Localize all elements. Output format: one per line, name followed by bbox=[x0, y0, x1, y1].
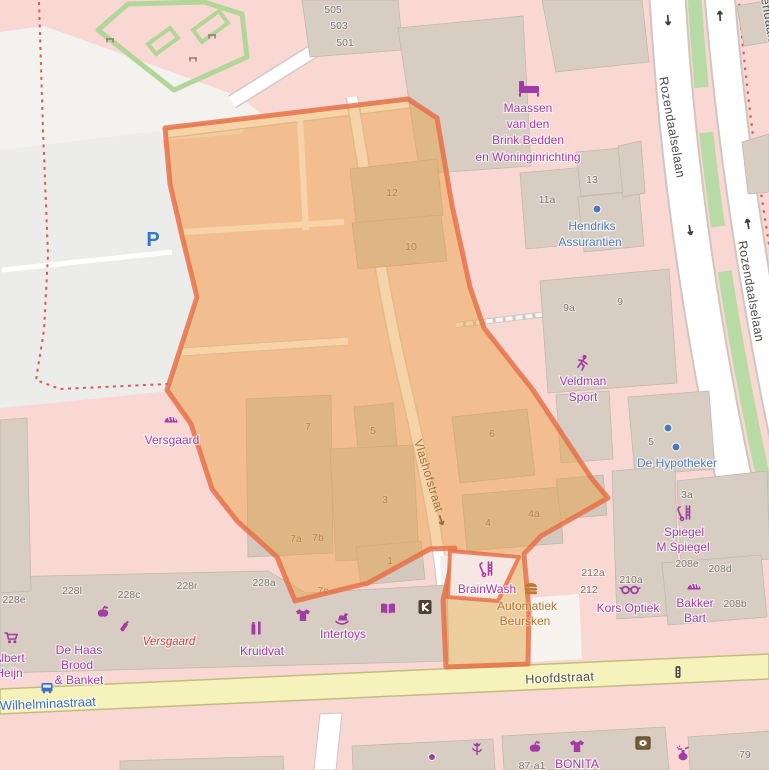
poi-label: Kors Optiek bbox=[597, 601, 661, 615]
poi-label: Versgaard bbox=[145, 433, 200, 447]
house-number: 11a bbox=[539, 194, 556, 206]
parking-symbol: P bbox=[146, 229, 159, 251]
kiosk-icon bbox=[419, 600, 432, 614]
house-number: 210a bbox=[619, 574, 643, 586]
office-dot-icon bbox=[593, 205, 601, 213]
poi-label: & Banket bbox=[55, 673, 104, 687]
poi-label: BrainWash bbox=[458, 582, 516, 596]
house-number: 212a bbox=[581, 567, 605, 579]
office-dot-icon bbox=[672, 443, 680, 451]
poi-label: Heijn bbox=[0, 666, 23, 680]
house-number: 208d bbox=[708, 563, 732, 575]
poi-label: Albert bbox=[0, 651, 25, 665]
burger-icon bbox=[525, 583, 537, 594]
poi-label: Brood bbox=[61, 658, 93, 672]
camera-icon bbox=[636, 737, 650, 749]
house-number: 87-a1 bbox=[519, 760, 546, 770]
house-number: 228e bbox=[2, 594, 26, 606]
poi-label: Maassen bbox=[504, 101, 553, 115]
house-number: 13 bbox=[586, 174, 598, 186]
house-number: 501 bbox=[336, 37, 354, 49]
house-number: 228a bbox=[252, 577, 276, 589]
poi-label: Versgaard bbox=[143, 636, 196, 648]
house-number: 3a bbox=[681, 489, 693, 501]
shop-dot-icon bbox=[429, 754, 436, 761]
building bbox=[688, 731, 769, 770]
house-number: 208b bbox=[723, 598, 747, 610]
house-number: 228l bbox=[62, 585, 82, 597]
house-number: 208e bbox=[675, 558, 699, 570]
poi-label: De Haas bbox=[56, 643, 103, 657]
poi-label: Veldman bbox=[560, 374, 607, 388]
house-number: 9 bbox=[617, 296, 623, 308]
house-number: 9a bbox=[563, 302, 575, 314]
house-number: 212 bbox=[580, 584, 598, 596]
poi-label: Bart bbox=[684, 611, 707, 625]
house-number: 228c bbox=[118, 589, 141, 601]
poi-label: Assurantien bbox=[558, 235, 621, 249]
office-dot-icon bbox=[664, 424, 672, 432]
poi-label: M Spiegel bbox=[656, 540, 709, 554]
building bbox=[542, 0, 649, 72]
house-number: 228r bbox=[176, 580, 198, 592]
house-number: 5 bbox=[648, 436, 654, 448]
book-icon bbox=[381, 603, 395, 614]
building bbox=[0, 418, 31, 593]
poi-label: Beursken bbox=[500, 614, 551, 628]
map-svg[interactable]: 12 10 7 5 6 3 4 4a 7a 7b 7c 1 Vlashofstr… bbox=[0, 0, 769, 770]
poi-label: Sport bbox=[569, 390, 598, 404]
poi-label: Intertoys bbox=[320, 627, 366, 641]
poi-label: en Woninginrichting bbox=[475, 150, 580, 164]
building bbox=[618, 141, 645, 197]
poi-label: Automatiek bbox=[497, 599, 558, 613]
poi-label: Brink Bedden bbox=[492, 133, 564, 147]
poi-label: De Hypotheker bbox=[637, 456, 717, 470]
traffic-signals-icon bbox=[676, 666, 681, 678]
poi-label: Kruidvat bbox=[240, 644, 285, 658]
poi-label: Hendriks bbox=[568, 219, 615, 233]
house-number: 79 bbox=[739, 749, 751, 761]
poi-label: BONITA bbox=[555, 757, 599, 770]
poi-label: Spiegel bbox=[664, 525, 704, 539]
house-number: 505 bbox=[324, 4, 342, 16]
poi-label: Bakker bbox=[676, 596, 713, 610]
house-number: 503 bbox=[330, 20, 348, 32]
map-canvas[interactable]: 12 10 7 5 6 3 4 4a 7a 7b 7c 1 Vlashofstr… bbox=[0, 0, 769, 770]
poi-label: van den bbox=[507, 117, 550, 131]
